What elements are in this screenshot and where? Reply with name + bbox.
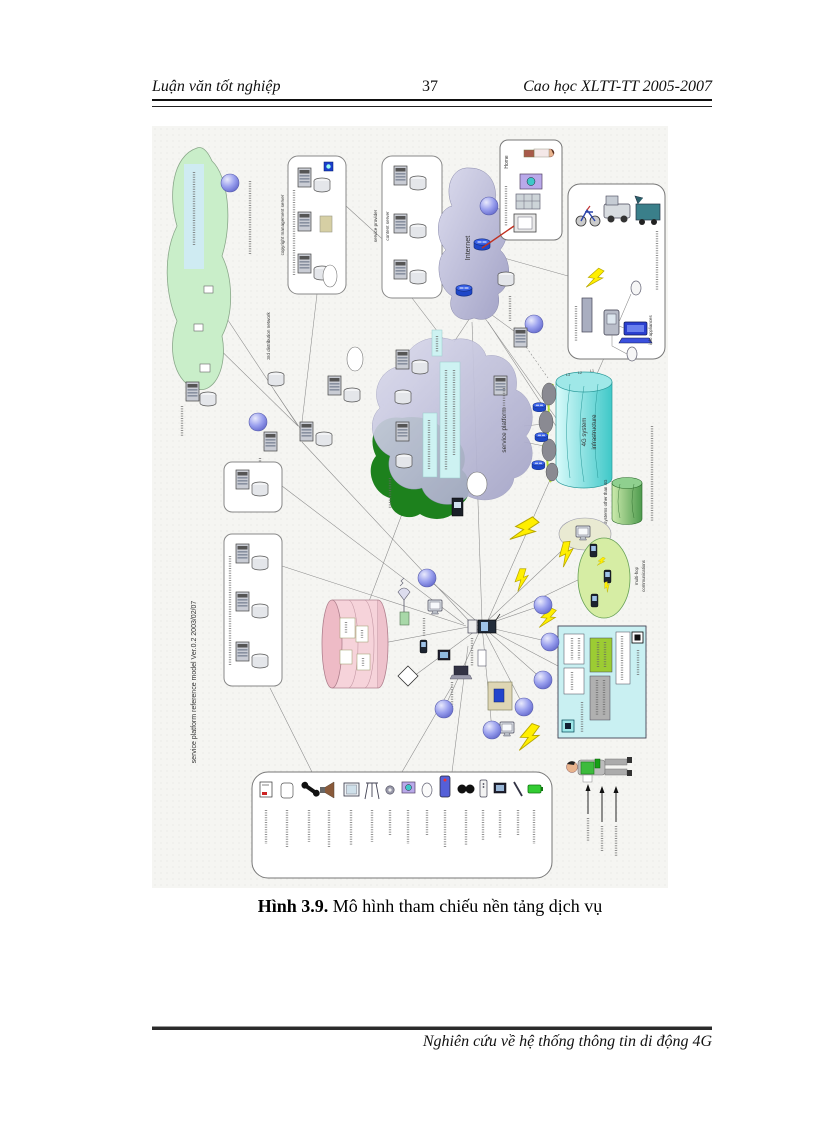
layer-label-2: L2	[578, 371, 582, 375]
multi-hop-label-2: communications	[641, 559, 646, 592]
figure-caption-number: Hình 3.9.	[258, 896, 329, 916]
phone-icon	[591, 594, 598, 607]
footer-rule	[152, 1026, 712, 1030]
service-platform-cloud: service platform	[371, 330, 533, 519]
layer-label-3: L3	[566, 373, 570, 377]
distribution-network-cloud: 3rd distribution network	[167, 148, 271, 390]
node-sphere-icon	[249, 413, 267, 431]
infrastructure-label-1: 4G system	[582, 418, 588, 447]
access-cluster	[498, 272, 543, 347]
content-server-label: content server	[385, 211, 390, 241]
copyright-server-label: copyright management server	[280, 194, 285, 255]
router-icon	[532, 461, 545, 470]
game-console-icon	[440, 776, 450, 797]
decision-diamond	[398, 666, 418, 686]
pda-icon	[604, 310, 619, 335]
canister-icon	[281, 783, 293, 798]
internet-label: Internet	[463, 236, 472, 260]
laptop-icon	[450, 666, 472, 679]
vehicle-terminal-box: info appliances	[568, 184, 665, 361]
figure-caption: Hình 3.9. Mô hình tham chiếu nền tảng dị…	[180, 896, 680, 917]
mouse-icon	[631, 281, 641, 295]
legend-box	[558, 626, 646, 738]
multi-hop-label-1: multi-hop	[634, 566, 639, 585]
person-at-home	[524, 149, 554, 157]
remote-icon	[480, 780, 487, 797]
dist-network-label: 3rd distribution network	[266, 312, 271, 360]
camera-icon	[402, 782, 415, 793]
phone-icon	[590, 544, 597, 557]
battery-icon	[528, 785, 543, 793]
router-icon	[535, 433, 548, 442]
file-icon	[260, 782, 272, 797]
node-sphere-icon	[525, 315, 543, 333]
node-sphere-icon	[221, 174, 239, 192]
service-provider-box: service provider content server	[373, 156, 442, 298]
kiosk-terminal-icon	[452, 498, 463, 516]
service-platform-diagram: 3rd distribution network copyright manag…	[152, 126, 668, 888]
infrastructure-label-2: infrastructure	[592, 414, 598, 450]
gear-device-icon	[386, 786, 394, 794]
multi-hop-ellipse: multi-hop communications	[578, 538, 646, 618]
tablet-pad-icon	[488, 682, 512, 710]
small-monitor-icon	[438, 650, 450, 660]
legend-gray-cell	[590, 676, 610, 720]
home-label: Home	[504, 155, 510, 169]
page-number: 37	[400, 78, 460, 96]
car-device-icon	[582, 298, 592, 332]
service-platform-label: service platform	[501, 407, 508, 452]
other-systems-label: Systems other than 4G	[603, 479, 608, 524]
tv-icon	[344, 783, 359, 796]
info-appliances-label: info appliances	[648, 315, 653, 345]
small-monitor-icon	[494, 783, 506, 793]
model-version-label: service platform reference model Ver.0.2…	[191, 601, 198, 764]
router-icon	[456, 285, 472, 296]
figure-caption-text: Mô hình tham chiếu nền tảng dịch vụ	[328, 896, 602, 916]
service-provider-label: service provider	[373, 209, 378, 242]
content-data-cylinder	[322, 600, 388, 688]
terminal-devices-box	[252, 772, 552, 878]
other-systems-cylinder: Systems other than 4G	[603, 478, 642, 525]
mouse-icon	[422, 783, 432, 797]
header-right: Cao học XLTT-TT 2005-2007	[523, 78, 712, 96]
legend-green-cell	[590, 638, 612, 672]
router-icon	[533, 403, 546, 412]
footer-text: Nghiên cứu về hệ thống thông tin di động…	[152, 1033, 712, 1051]
thesis-page: Luận văn tốt nghiệp . Cao học XLTT-TT 20…	[0, 0, 816, 1123]
wearable-vest	[581, 762, 594, 774]
belt-device	[595, 759, 600, 768]
central-terminal-cluster	[420, 600, 514, 736]
copyright-management-server-box: copyright management server	[280, 156, 346, 294]
mouse-icon	[627, 347, 637, 361]
internet-cloud: Internet	[438, 168, 508, 320]
antenna-icon	[398, 578, 410, 625]
phone-icon	[604, 570, 611, 583]
figure-3-9: 3rd distribution network copyright manag…	[152, 126, 668, 888]
layer-label-1: L1	[590, 369, 594, 373]
header-left: Luận văn tốt nghiệp	[152, 78, 280, 96]
annotation-arrows	[586, 784, 619, 822]
av-shelf-icon	[516, 194, 540, 209]
header-rule	[152, 99, 712, 107]
user-person	[567, 757, 633, 856]
phone-icon	[420, 640, 427, 653]
node-sphere-icon	[480, 197, 498, 215]
tv-monitor-icon	[514, 214, 536, 232]
